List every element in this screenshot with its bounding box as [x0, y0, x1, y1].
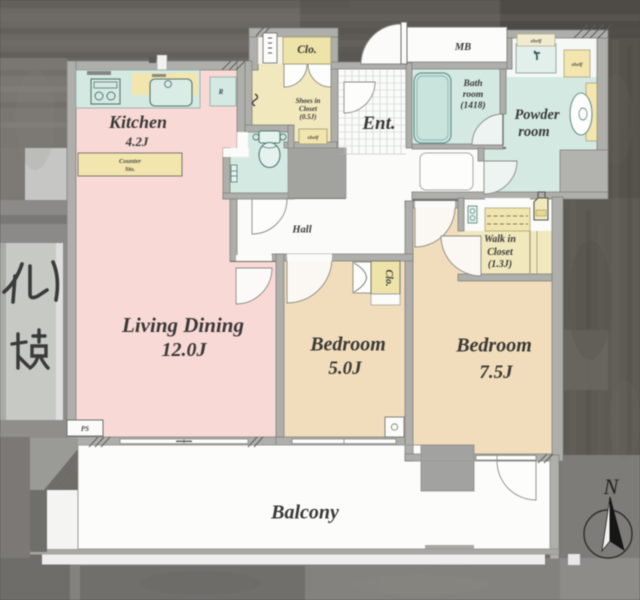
svg-text:N: N [603, 474, 620, 499]
svg-text:Bedroom: Bedroom [455, 335, 532, 357]
svg-text:Sto.: Sto. [125, 166, 136, 173]
svg-text:room: room [463, 90, 484, 100]
svg-text:7.5J: 7.5J [479, 362, 513, 383]
svg-text:MB: MB [454, 42, 471, 53]
svg-text:4.2J: 4.2J [125, 134, 149, 149]
svg-text:Kitchen: Kitchen [108, 112, 167, 132]
svg-text:5.0J: 5.0J [328, 358, 362, 379]
svg-text:(1418): (1418) [460, 100, 485, 111]
svg-text:shelf: shelf [530, 39, 543, 45]
svg-text:room: room [518, 124, 549, 140]
svg-text:Walk in: Walk in [484, 234, 516, 245]
svg-text:(0.5J): (0.5J) [300, 113, 317, 121]
svg-text:Powder: Powder [514, 107, 559, 123]
svg-text:Bedroom: Bedroom [309, 334, 386, 356]
svg-text:shelf: shelf [571, 62, 584, 68]
svg-text:PS: PS [81, 425, 89, 433]
svg-text:(1.3J): (1.3J) [488, 259, 512, 270]
svg-text:Clo.: Clo. [297, 44, 317, 56]
svg-text:Closet: Closet [487, 247, 514, 258]
svg-text:Shoes in: Shoes in [296, 97, 321, 105]
svg-text:Clo.: Clo. [383, 270, 394, 287]
svg-text:R: R [218, 88, 224, 96]
svg-text:shelf: shelf [307, 135, 320, 141]
svg-text:Living Dining: Living Dining [121, 313, 244, 337]
svg-text:Counter: Counter [119, 158, 142, 165]
svg-text:Balcony: Balcony [270, 502, 339, 524]
svg-text:Ent.: Ent. [361, 113, 395, 134]
svg-text:Closet: Closet [299, 105, 318, 113]
svg-text:Bath: Bath [462, 79, 482, 89]
svg-text:12.0J: 12.0J [162, 339, 208, 361]
svg-text:Hall: Hall [291, 225, 311, 236]
